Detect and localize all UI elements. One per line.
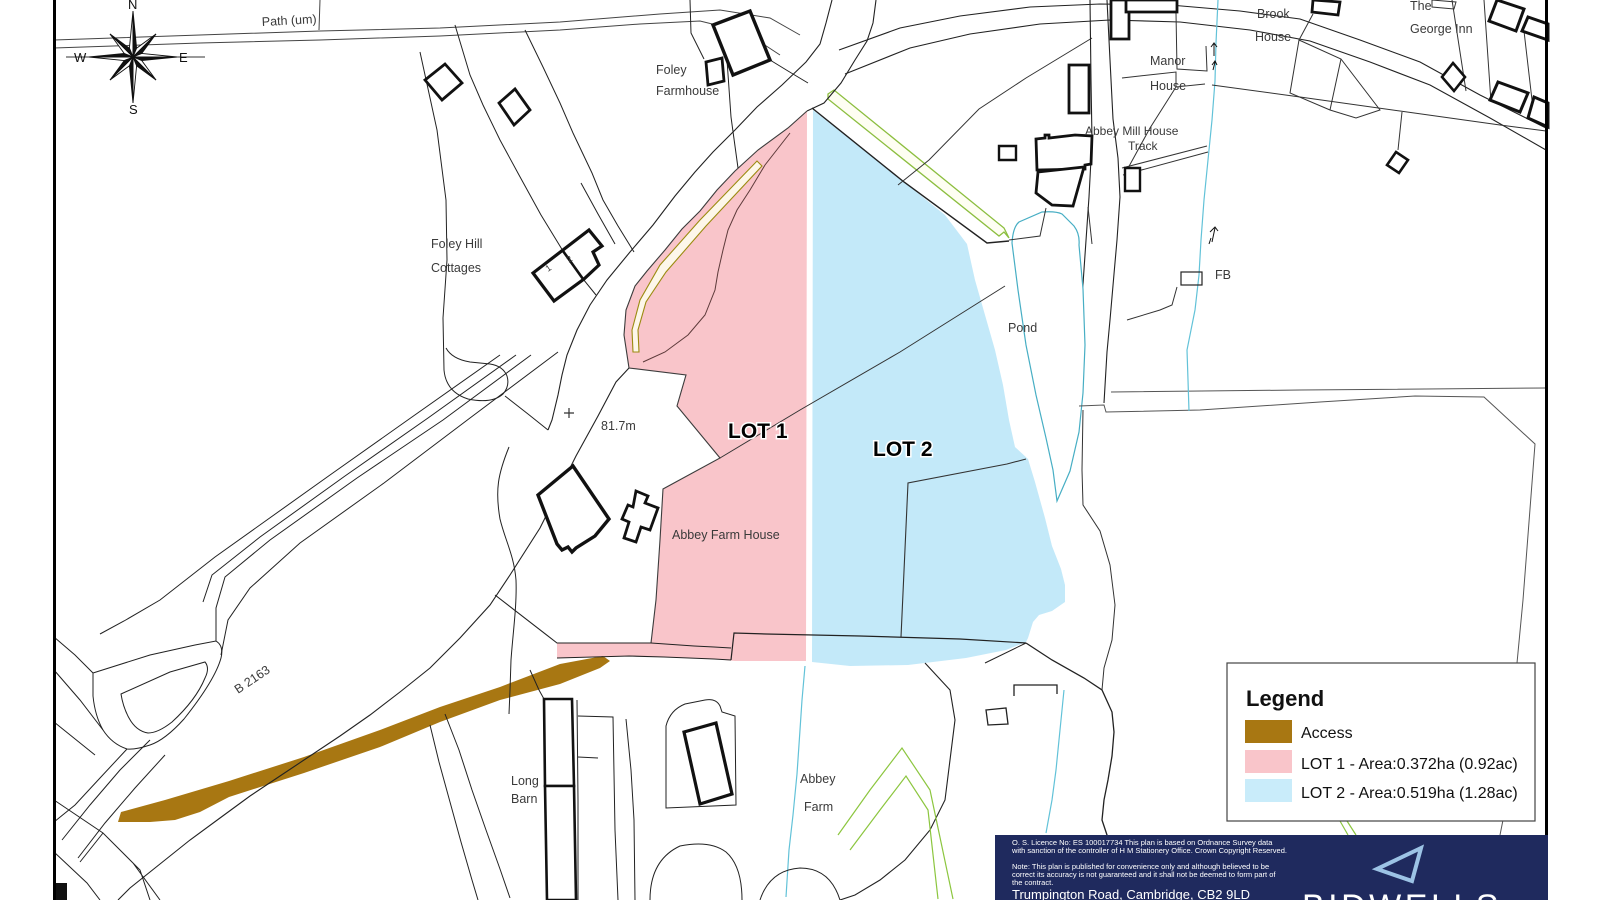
svg-text:LOT 1: LOT 1 xyxy=(728,420,788,443)
svg-text:Abbey Farm House: Abbey Farm House xyxy=(672,528,780,542)
svg-text:E: E xyxy=(179,50,188,65)
svg-text:Track: Track xyxy=(1128,139,1159,153)
svg-text:LOT 1 - Area:0.372ha (0.92ac): LOT 1 - Area:0.372ha (0.92ac) xyxy=(1301,756,1518,773)
svg-text:Abbey: Abbey xyxy=(800,772,836,786)
svg-text:the contract.: the contract. xyxy=(1012,878,1053,887)
svg-text:Foley: Foley xyxy=(656,63,687,77)
svg-text:Abbey Mill House: Abbey Mill House xyxy=(1085,124,1179,138)
svg-text:LOT 2: LOT 2 xyxy=(873,438,933,461)
svg-text:The: The xyxy=(1410,0,1432,13)
svg-text:Brook: Brook xyxy=(1257,7,1290,21)
svg-text:Barn: Barn xyxy=(511,792,537,806)
svg-text:Farm: Farm xyxy=(804,800,833,814)
svg-text:House: House xyxy=(1255,30,1291,44)
svg-text:Foley Hill: Foley Hill xyxy=(431,237,482,251)
svg-text:N: N xyxy=(128,0,137,12)
svg-text:Pond: Pond xyxy=(1008,321,1037,335)
svg-text:Access: Access xyxy=(1301,725,1353,742)
svg-text:with sanction of the controlle: with sanction of the controller of H M S… xyxy=(1011,846,1287,855)
svg-text:Trumpington Road, Cambridge, C: Trumpington Road, Cambridge, CB2 9LD xyxy=(1012,887,1250,900)
svg-text:BIDWELLS: BIDWELLS xyxy=(1302,888,1502,900)
svg-text:Manor: Manor xyxy=(1150,54,1185,68)
svg-text:FB: FB xyxy=(1215,268,1231,282)
svg-text:Legend: Legend xyxy=(1246,686,1324,711)
svg-text:W: W xyxy=(74,50,87,65)
svg-text:Long: Long xyxy=(511,774,539,788)
svg-text:Path (um): Path (um) xyxy=(261,12,317,29)
svg-text:George Inn: George Inn xyxy=(1410,22,1473,36)
svg-text:S: S xyxy=(129,102,138,117)
svg-text:House: House xyxy=(1150,79,1186,93)
svg-text:Farmhouse: Farmhouse xyxy=(656,84,719,98)
svg-text:Cottages: Cottages xyxy=(431,261,481,275)
svg-text:LOT 2 - Area:0.519ha (1.28ac): LOT 2 - Area:0.519ha (1.28ac) xyxy=(1301,785,1518,802)
svg-text:81.7m: 81.7m xyxy=(601,419,636,433)
